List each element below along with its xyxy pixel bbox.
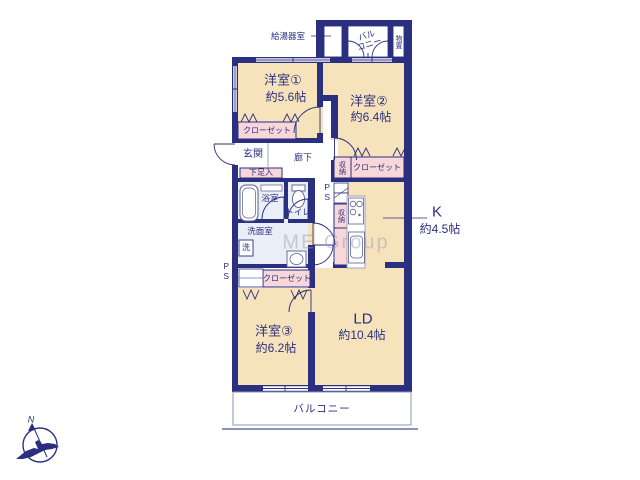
room2-name: 洋室② xyxy=(350,95,388,108)
room1-size: 約5.6帖 xyxy=(266,91,307,103)
room1-name: 洋室① xyxy=(264,74,302,87)
window-room3-bottom xyxy=(263,386,308,391)
window-ld-bottom xyxy=(323,386,370,391)
compass xyxy=(16,423,59,462)
kitchen-name: K xyxy=(432,205,442,220)
balcony-label: バルコニー xyxy=(293,404,350,415)
bath-counter xyxy=(261,185,282,191)
window-room2-top xyxy=(352,58,392,62)
room2-size: 約6.4帖 xyxy=(351,111,392,123)
water-heater-room-label: 給湯器室 xyxy=(271,32,305,41)
room3-name: 洋室③ xyxy=(255,325,293,338)
storage-hall-label: 収納 xyxy=(339,161,346,175)
watermark-text: ME Group xyxy=(282,232,389,255)
pipe-space-left-label: PS xyxy=(222,261,231,281)
living-dining-size: 約10.4帖 xyxy=(338,329,385,341)
entrance-label: 玄関 xyxy=(243,150,263,160)
storage-kitchen-label: 収納 xyxy=(338,209,345,223)
window-room1-left xyxy=(233,66,237,112)
bathroom-label: 浴室 xyxy=(261,194,278,203)
pipe-space-center-label: PS xyxy=(323,182,332,202)
entrance-door-gap xyxy=(232,143,239,165)
compass-north-label: N xyxy=(28,416,35,425)
toilet-label: トイレ xyxy=(285,208,311,217)
washroom-label: 洗面室 xyxy=(247,227,273,236)
closet2-label: クローゼット xyxy=(353,164,401,172)
hallway-label: 廊下 xyxy=(294,154,312,163)
storeroom-label: 物置 xyxy=(395,35,402,49)
water-heater-room-box xyxy=(324,26,342,57)
shoe-cabinet-label: 下足入 xyxy=(249,169,273,177)
corridor-stub xyxy=(323,101,331,140)
window-room1-top xyxy=(256,58,330,62)
kitchen-size: 約4.5帖 xyxy=(420,223,461,235)
closet3-label: クローゼット xyxy=(263,275,311,283)
washer-label: 洗 xyxy=(242,244,250,252)
floor-plan-page: ME Group 洋室① 約5.6帖 洋室② 約6.4帖 洋室③ 約6.2帖 L… xyxy=(0,0,640,480)
living-dining-name: LD xyxy=(353,312,372,327)
closet1-label: クローゼット xyxy=(243,127,291,135)
room3-size: 約6.2帖 xyxy=(256,342,297,354)
